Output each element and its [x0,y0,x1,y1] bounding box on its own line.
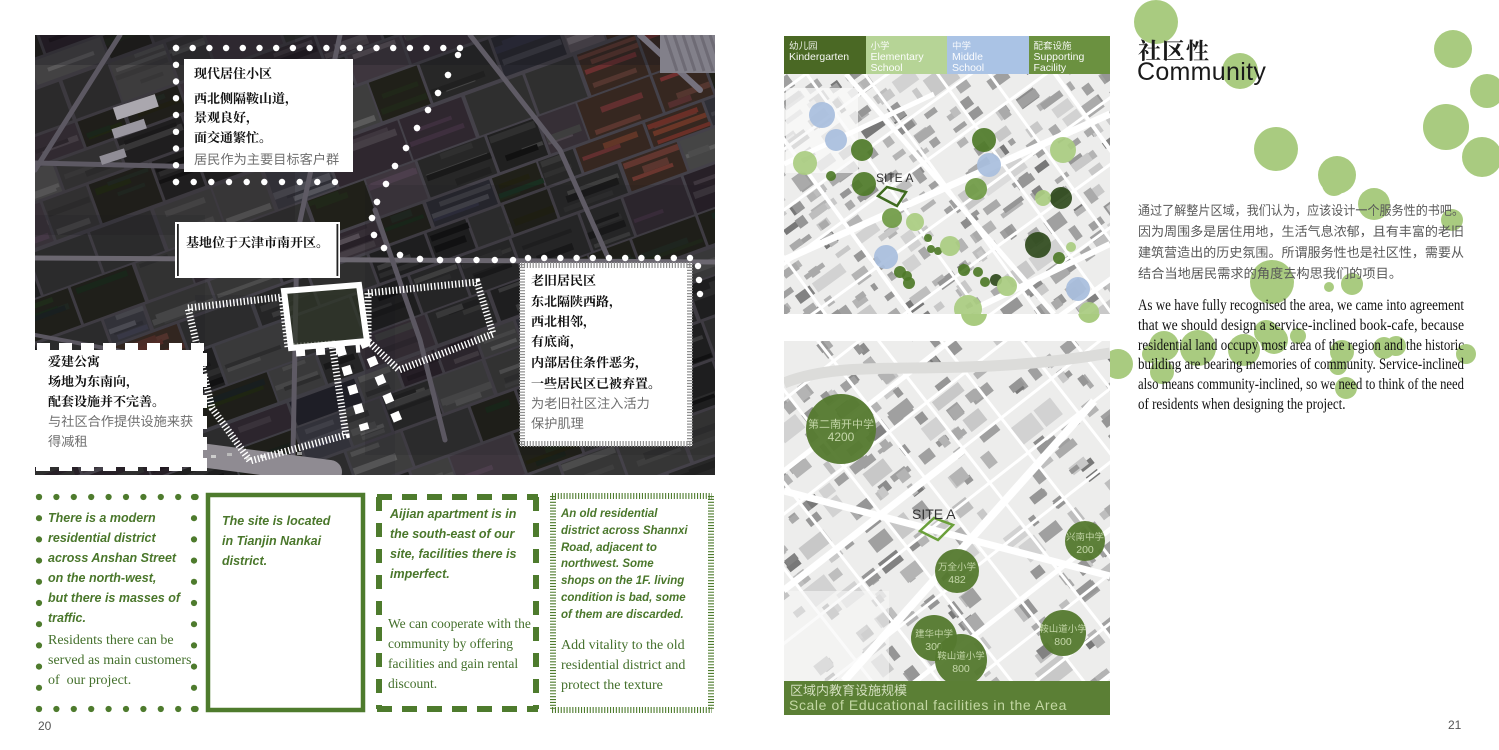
svg-text:800: 800 [1054,636,1072,648]
svg-text:20: 20 [38,719,52,733]
svg-text:482: 482 [948,574,966,586]
svg-text:4200: 4200 [828,430,855,444]
svg-text:200: 200 [1076,544,1094,556]
svg-text:Kindergarten: Kindergarten [789,51,849,63]
svg-text:800: 800 [952,663,970,675]
svg-text:Scale of Educational facilitie: Scale of Educational facilities in the A… [789,697,1067,713]
svg-text:School: School [952,62,984,74]
svg-text:Facility: Facility [1034,62,1067,74]
svg-text:SITE A: SITE A [912,506,956,522]
svg-text:School: School [871,62,903,74]
svg-text:SITE A: SITE A [876,171,913,185]
